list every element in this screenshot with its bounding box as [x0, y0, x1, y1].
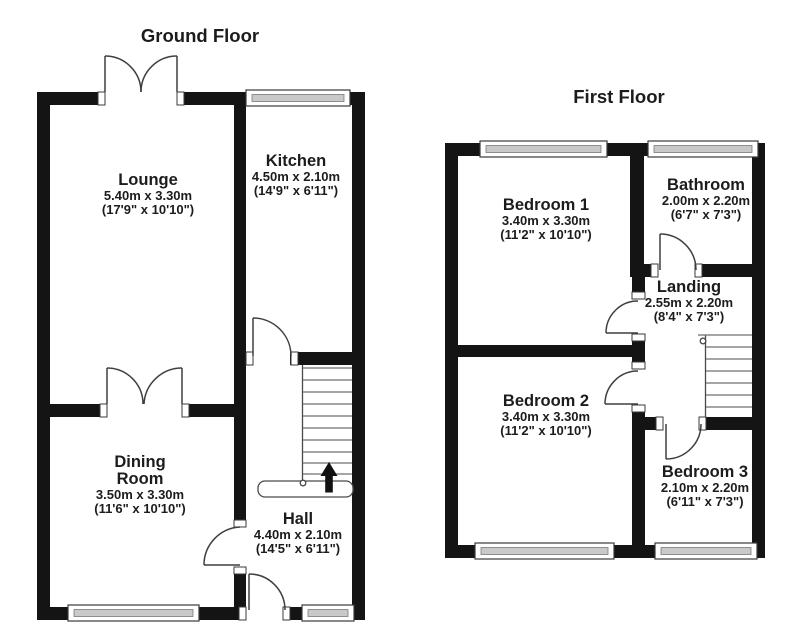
exterior-wall-left [37, 92, 50, 620]
bedroom2-imperial-dimensions: (11'2" x 10'10") [500, 423, 592, 438]
exterior-wall-top [177, 92, 247, 105]
bedroom2-metric-dimensions: 3.40m x 3.30m [502, 409, 590, 424]
exterior-wall-right [352, 92, 365, 620]
exterior-wall-right [752, 143, 765, 558]
kitchen-imperial-dimensions: (14'9" x 6'11") [254, 183, 338, 198]
bedroom3-door [656, 417, 706, 459]
kitchen-name: Kitchen [266, 152, 327, 170]
bedroom3-imperial-dimensions: (6'11" x 7'3") [666, 494, 743, 509]
bedroom2-name: Bedroom 2 [503, 392, 589, 410]
first-floor-title: First Floor [573, 86, 664, 107]
landing-name: Landing [657, 278, 721, 296]
landing-label: Landing 2.55m x 2.20m (8'4" x 7'3") [645, 278, 733, 324]
first-floor-plan: First Floor [445, 86, 765, 559]
bedroom1-name: Bedroom 1 [503, 196, 589, 214]
bathroom-imperial-dimensions: (6'7" x 7'3") [671, 207, 742, 222]
dining-room-metric-dimensions: 3.50m x 3.30m [96, 487, 184, 502]
interior-wall-bedroom1-bedroom2 [458, 345, 632, 357]
hall-label: Hall 4.40m x 2.10m (14'5" x 6'11") [254, 510, 342, 556]
interior-wall-bedroom3 [699, 417, 752, 430]
bedroom1-metric-dimensions: 3.40m x 3.30m [502, 213, 590, 228]
bathroom-label: Bathroom 2.00m x 2.20m (6'7" x 7'3") [662, 176, 750, 222]
hall-imperial-dimensions: (14'5" x 6'11") [256, 541, 340, 556]
interior-wall-bedroom1-bathroom [630, 156, 644, 266]
dining-hall-door [204, 520, 246, 574]
lounge-label: Lounge 5.40m x 3.30m (17'9" x 10'10") [102, 171, 194, 217]
bedroom2-label: Bedroom 2 3.40m x 3.30m (11'2" x 10'10") [500, 392, 592, 438]
hall-name: Hall [283, 510, 313, 528]
stair-newel [300, 480, 306, 486]
kitchen-metric-dimensions: 4.50m x 2.10m [252, 169, 340, 184]
interior-wall-kitchen-hall [290, 352, 352, 365]
lounge-imperial-dimensions: (17'9" x 10'10") [102, 202, 194, 217]
ground-floor-staircase [258, 365, 353, 497]
interior-wall-lounge-dining [182, 404, 234, 417]
bedroom3-name: Bedroom 3 [662, 463, 748, 481]
dining-room-name-line2: Room [117, 470, 164, 488]
bathroom-name: Bathroom [667, 176, 745, 194]
exterior-wall-bottom [612, 545, 658, 558]
ground-floor-plan: Ground Floor [37, 25, 365, 621]
floorplan-drawing: Ground Floor [0, 0, 800, 625]
bedroom3-window [655, 543, 757, 559]
hall-window [302, 605, 354, 621]
interior-wall-lounge-dining [50, 404, 107, 417]
bedroom1-label: Bedroom 1 3.40m x 3.30m (11'2" x 10'10") [500, 196, 592, 242]
first-floor-staircase [698, 335, 752, 417]
interior-wall-hall-divider [234, 105, 246, 527]
bedroom1-imperial-dimensions: (11'2" x 10'10") [500, 227, 592, 242]
exterior-wall-top [37, 92, 105, 105]
exterior-wall-top [350, 92, 365, 105]
dining-lounge-double-door [100, 368, 189, 417]
bedroom1-door [606, 292, 645, 341]
exterior-wall-top [445, 143, 482, 156]
bedroom1-window [480, 141, 607, 157]
lounge-name: Lounge [118, 171, 178, 189]
hall-metric-dimensions: 4.40m x 2.10m [254, 527, 342, 542]
bedroom2-door [605, 362, 645, 412]
dining-room-imperial-dimensions: (11'6" x 10'10") [94, 501, 186, 516]
floorplan-page: Ground Floor [0, 0, 800, 625]
exterior-wall-left [445, 143, 458, 558]
stair-newel [700, 338, 706, 344]
exterior-wall-bottom [37, 607, 70, 620]
interior-wall-bathroom-landing [695, 264, 765, 277]
landing-imperial-dimensions: (8'4" x 7'3") [654, 309, 725, 324]
bathroom-metric-dimensions: 2.00m x 2.20m [662, 193, 750, 208]
exterior-wall-bottom [445, 545, 477, 558]
dining-room-window [68, 605, 199, 621]
dining-room-label: Dining Room 3.50m x 3.30m (11'6" x 10'10… [94, 453, 186, 516]
kitchen-label: Kitchen 4.50m x 2.10m (14'9" x 6'11") [252, 152, 340, 198]
bedroom3-label: Bedroom 3 2.10m x 2.20m (6'11" x 7'3") [661, 463, 749, 509]
bedroom3-metric-dimensions: 2.10m x 2.20m [661, 480, 749, 495]
bathroom-window [648, 141, 758, 157]
kitchen-window [246, 90, 350, 106]
lounge-metric-dimensions: 5.40m x 3.30m [104, 188, 192, 203]
dining-room-name-line1: Dining [114, 453, 165, 471]
bathroom-door [651, 234, 702, 277]
landing-metric-dimensions: 2.55m x 2.20m [645, 295, 733, 310]
lounge-patio-double-door [98, 56, 184, 105]
front-entrance-door [239, 574, 290, 620]
ground-floor-title: Ground Floor [141, 25, 259, 46]
exterior-wall-top [605, 143, 650, 156]
bedroom2-window [475, 543, 614, 559]
